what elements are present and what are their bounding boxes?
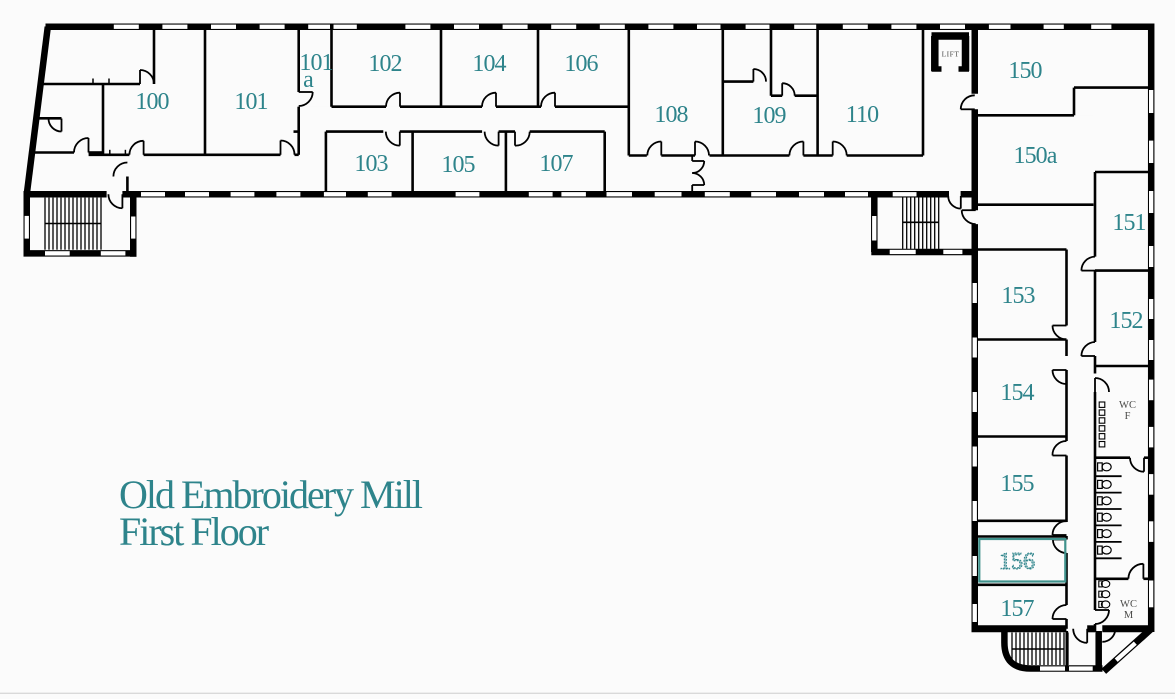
svg-text:106: 106 [564,51,598,77]
svg-text:LIFT: LIFT [942,50,960,59]
svg-text:M: M [1124,610,1134,621]
svg-text:156: 156 [999,549,1035,575]
svg-text:153: 153 [1001,283,1035,309]
svg-text:100: 100 [135,89,169,115]
svg-text:157: 157 [1000,596,1034,622]
svg-text:101: 101 [234,89,267,115]
svg-text:155: 155 [1000,471,1034,497]
svg-text:110: 110 [846,102,879,128]
svg-text:102: 102 [368,51,401,77]
svg-text:154: 154 [1000,380,1034,406]
svg-text:a: a [303,67,314,93]
svg-text:151: 151 [1112,210,1145,236]
svg-text:103: 103 [354,151,388,177]
svg-text:105: 105 [441,152,475,178]
svg-text:First Floor: First Floor [119,509,269,554]
svg-text:107: 107 [539,151,573,177]
svg-text:152: 152 [1109,308,1142,334]
svg-text:WC: WC [1120,599,1137,610]
svg-text:150: 150 [1008,58,1042,84]
svg-text:108: 108 [654,102,688,128]
svg-text:109: 109 [752,103,786,129]
svg-text:150a: 150a [1013,143,1057,169]
svg-text:104: 104 [472,51,506,77]
svg-text:F: F [1125,411,1131,422]
svg-text:WC: WC [1119,400,1136,411]
